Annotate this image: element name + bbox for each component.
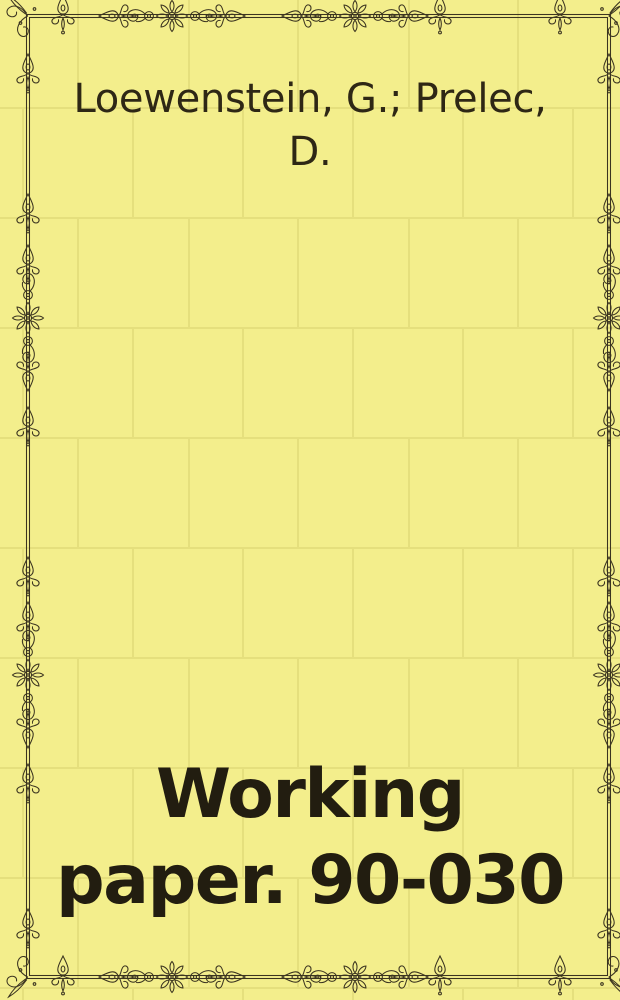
- author-line-1: Loewenstein, G.; Prelec,: [30, 73, 590, 126]
- cover-title: Working paper. 90-030: [26, 752, 594, 924]
- title-line-1: Working: [26, 752, 594, 838]
- author-line-2: D.: [30, 126, 590, 179]
- cover-authors: Loewenstein, G.; Prelec, D.: [30, 73, 590, 179]
- title-line-2: paper. 90-030: [26, 838, 594, 924]
- book-cover-page: Loewenstein, G.; Prelec, D. Working pape…: [0, 0, 620, 1000]
